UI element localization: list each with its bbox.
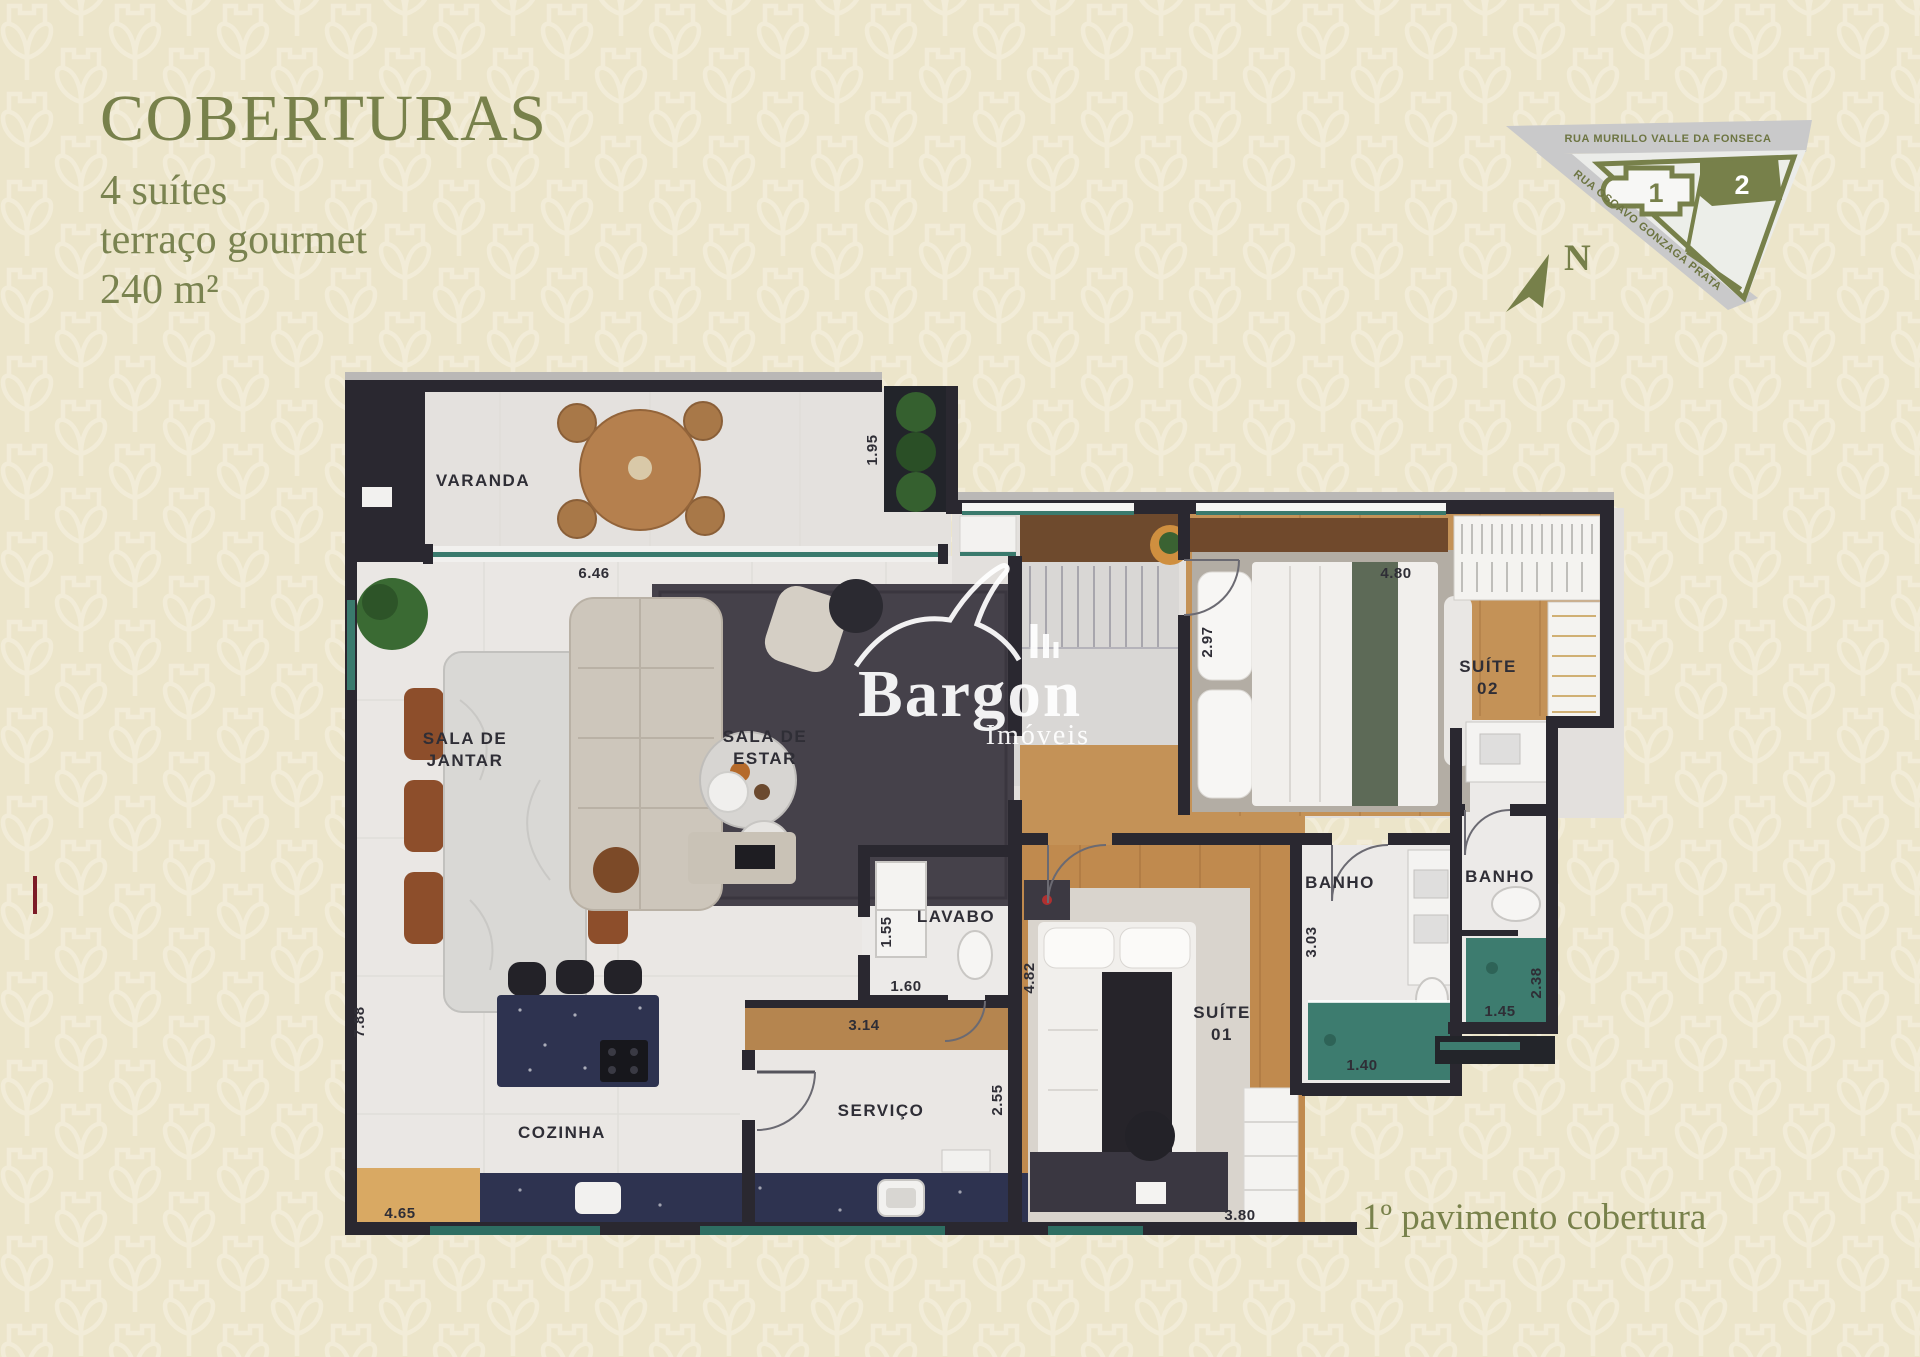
accent-chair [829,579,883,633]
page-title: COBERTURAS [100,84,547,153]
page-edge-mark [33,876,37,914]
dim-suite02-depth: 2.97 [1199,626,1216,657]
room-label-servico: SERVIÇO [838,1101,925,1120]
wardrobe-suite02 [1454,516,1600,600]
dim-servico-depth: 2.55 [989,1084,1006,1115]
dim-banho2-depth: 2.38 [1528,967,1545,998]
dim-lavabo-depth: 1.60 [890,978,921,995]
wall-clock-icon [708,772,748,812]
dim-varanda-depth: 1.95 [864,434,881,465]
dim-hall-counter: 3.14 [848,1017,879,1034]
room-label-suite01-2: 01 [1211,1025,1233,1044]
map-street-top-label: RUA MURILLO VALLE DA FONSECA [1564,133,1771,145]
logo-tagline: Imóveis [986,720,1090,751]
dim-suite01-width: 3.80 [1224,1207,1255,1224]
pouf [593,847,639,893]
north-label: N [1564,238,1591,279]
floor-plan: VARANDA SALA DE JANTAR SALA DE ESTAR COZ… [330,370,1630,1245]
dim-suite02-width: 4.80 [1380,565,1411,582]
site-location-map: 1 2 RUA MURILLO VALLE DA FONSECA RUA OSC… [1490,80,1920,330]
dim-banho2-width: 1.45 [1484,1003,1515,1020]
kitchen-sink [575,1182,621,1214]
dim-banho1-depth: 3.03 [1303,926,1320,957]
room-label-banho1: BANHO [1305,873,1375,892]
room-label-banho2: BANHO [1465,867,1535,886]
room-label-lavabo: LAVABO [917,907,995,926]
room-label-sala-jantar-1: SALA DE [423,729,508,748]
bed-suite02 [1252,562,1438,806]
desk-chair [1125,1111,1175,1161]
dim-kitchen-counter: 4.65 [384,1205,415,1222]
floor-caption: 1º pavimento cobertura [1362,1196,1706,1239]
wood-counter [353,1168,480,1223]
room-label-varanda: VARANDA [436,471,530,490]
room-label-suite02-1: SUÍTE [1459,657,1517,676]
dim-varanda-width: 6.46 [578,565,609,582]
room-label-sala-jantar-2: JANTAR [427,751,504,770]
subtitle-terrace: terraço gourmet [100,216,547,265]
kitchen-counter [480,1173,1040,1223]
room-label-suite01-1: SUÍTE [1193,1003,1251,1022]
varanda-planter [884,386,948,512]
dim-banho1-width: 1.40 [1346,1057,1377,1074]
desk [1030,1152,1228,1212]
north-arrow-icon [1506,254,1549,312]
closet-suite02 [1548,602,1600,722]
dim-lavabo-width: 1.55 [878,916,895,947]
dim-suite01-depth: 4.82 [1021,962,1038,993]
subtitle-block: 4 suítes terraço gourmet 240 m² [100,167,547,314]
headboard [1190,518,1448,552]
room-label-sala-estar-2: ESTAR [733,749,797,768]
room-label-sala-estar-1: SALA DE [723,727,808,746]
varanda-dining-set [558,402,724,538]
dim-living-depth: 7.88 [351,1006,368,1037]
subtitle-area: 240 m² [100,266,547,315]
subtitle-suites: 4 suítes [100,167,547,216]
toilet [958,931,992,979]
room-label-suite02-2: 02 [1477,679,1499,698]
map-building-2-label: 2 [1734,170,1749,200]
map-building-1-label: 1 [1648,178,1663,208]
title-block: COBERTURAS 4 suítes terraço gourmet 240 … [100,84,547,315]
room-label-cozinha: COZINHA [518,1123,606,1142]
